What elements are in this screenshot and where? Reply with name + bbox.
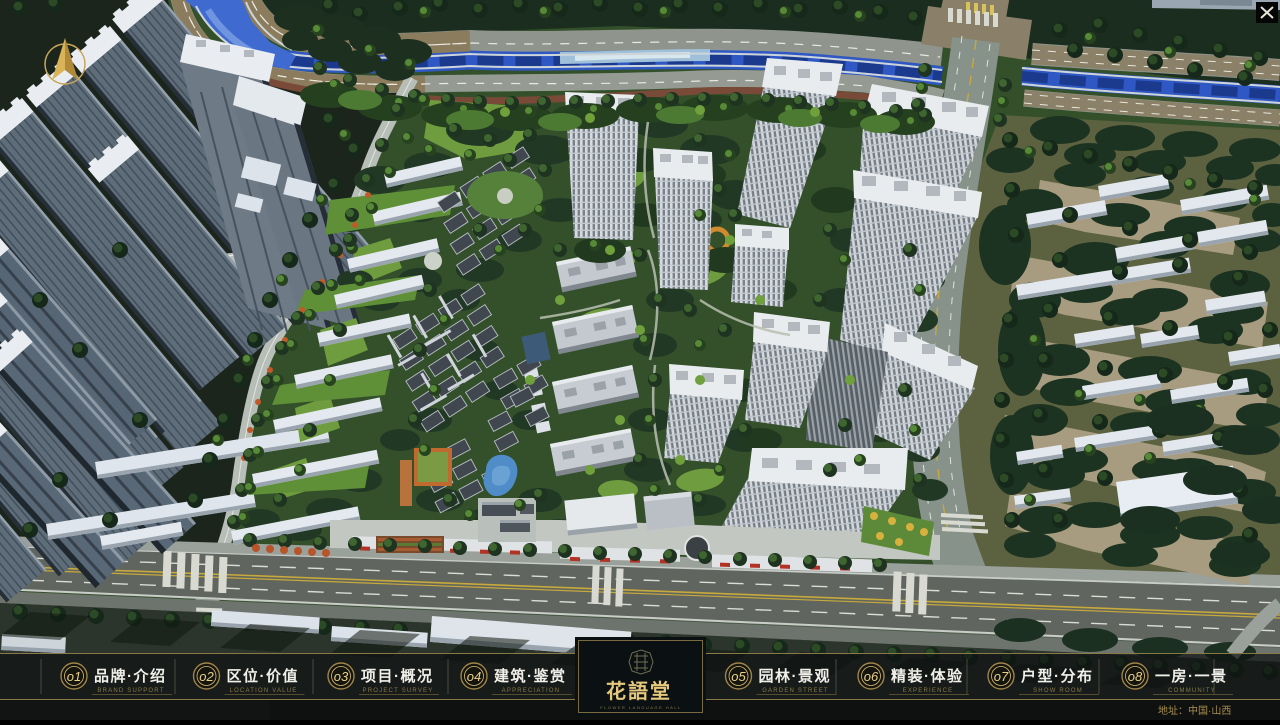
- svg-text:o7: o7: [994, 669, 1009, 684]
- svg-text:花語堂: 花語堂: [606, 679, 672, 703]
- svg-text:FLOWER LANGUAGE HALL: FLOWER LANGUAGE HALL: [600, 705, 682, 710]
- svg-text:区位·价值: 区位·价值: [227, 667, 300, 685]
- svg-text:SHOW ROOM: SHOW ROOM: [1033, 688, 1083, 694]
- svg-text:o8: o8: [1128, 669, 1143, 684]
- svg-text:GARDEN STREET: GARDEN STREET: [762, 688, 829, 694]
- svg-text:o1: o1: [67, 669, 81, 684]
- svg-text:精装·体验: 精装·体验: [891, 667, 964, 685]
- svg-text:APPRECIATION: APPRECIATION: [502, 688, 561, 694]
- svg-text:BRAND SUPPORT: BRAND SUPPORT: [97, 688, 164, 694]
- svg-text:园林·景观: 园林·景观: [759, 667, 832, 685]
- svg-text:o4: o4: [467, 669, 481, 684]
- svg-text:LOCATION VALUE: LOCATION VALUE: [230, 688, 298, 694]
- svg-text:建筑·鉴赏: 建筑·鉴赏: [494, 667, 567, 685]
- svg-text:品牌·介绍: 品牌·介绍: [94, 667, 167, 685]
- svg-text:一房·一景: 一房·一景: [1155, 667, 1228, 685]
- svg-text:项目·概况: 项目·概况: [361, 667, 434, 685]
- svg-text:o6: o6: [864, 669, 879, 684]
- svg-text:o2: o2: [199, 669, 214, 684]
- svg-text:地址：中国·山西: 地址：中国·山西: [1158, 704, 1231, 717]
- svg-text:EXPERIENCE: EXPERIENCE: [903, 688, 954, 694]
- svg-text:COMMUNITY: COMMUNITY: [1168, 688, 1216, 694]
- svg-text:PROJECT SURVEY: PROJECT SURVEY: [363, 688, 434, 694]
- svg-text:o3: o3: [334, 669, 349, 684]
- svg-text:户型·分布: 户型·分布: [1021, 667, 1094, 685]
- svg-text:o5: o5: [731, 669, 746, 684]
